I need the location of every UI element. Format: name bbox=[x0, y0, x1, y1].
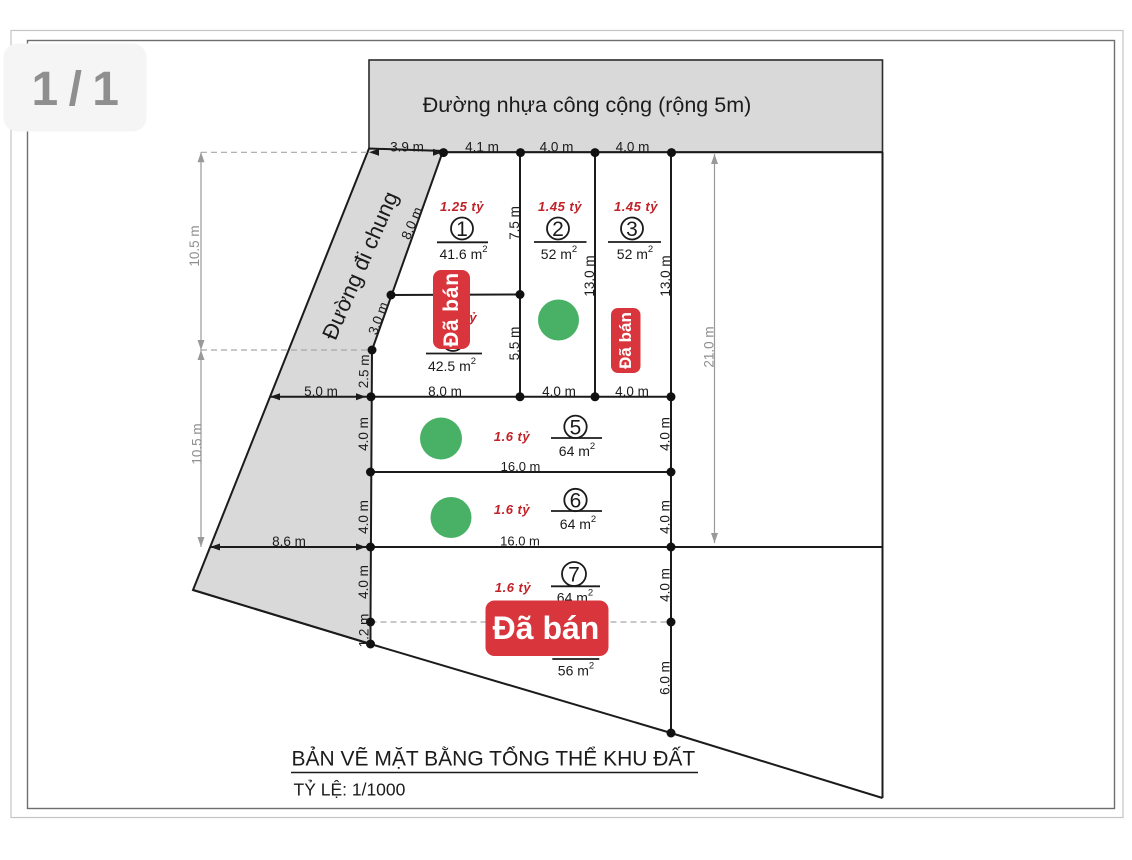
svg-text:1.6 tỷ: 1.6 tỷ bbox=[495, 580, 532, 595]
svg-text:13.0 m: 13.0 m bbox=[658, 255, 673, 296]
svg-text:4.0 m: 4.0 m bbox=[658, 568, 673, 602]
svg-text:41.6 m2: 41.6 m2 bbox=[439, 244, 487, 262]
svg-text:6: 6 bbox=[570, 490, 582, 513]
svg-text:42.5 m2: 42.5 m2 bbox=[428, 356, 476, 374]
svg-text:52 m2: 52 m2 bbox=[617, 244, 653, 262]
svg-text:1.45 tỷ: 1.45 tỷ bbox=[614, 199, 658, 214]
svg-text:1.25 tỷ: 1.25 tỷ bbox=[440, 199, 484, 214]
svg-text:8.0 m: 8.0 m bbox=[428, 384, 462, 399]
svg-text:Đã bán: Đã bán bbox=[493, 610, 600, 646]
svg-text:4.0 m: 4.0 m bbox=[658, 417, 673, 451]
svg-text:6.0 m: 6.0 m bbox=[658, 661, 673, 695]
svg-text:10.5 m: 10.5 m bbox=[190, 423, 205, 464]
svg-text:7: 7 bbox=[568, 564, 580, 587]
svg-text:4.0 m: 4.0 m bbox=[616, 140, 650, 155]
svg-text:1.6 tỷ: 1.6 tỷ bbox=[494, 429, 531, 444]
svg-text:7.5 m: 7.5 m bbox=[507, 206, 522, 240]
svg-text:64 m2: 64 m2 bbox=[560, 514, 596, 532]
svg-text:4.1 m: 4.1 m bbox=[465, 140, 499, 155]
svg-text:10.5 m: 10.5 m bbox=[187, 225, 202, 266]
svg-text:8.6 m: 8.6 m bbox=[272, 534, 306, 549]
svg-text:1.45 tỷ: 1.45 tỷ bbox=[538, 199, 582, 214]
svg-text:4.0 m: 4.0 m bbox=[356, 565, 371, 599]
svg-text:4.0 m: 4.0 m bbox=[615, 384, 649, 399]
svg-text:52 m2: 52 m2 bbox=[541, 244, 577, 262]
svg-text:3: 3 bbox=[626, 218, 638, 241]
svg-text:4.0 m: 4.0 m bbox=[356, 500, 371, 534]
svg-text:4.0 m: 4.0 m bbox=[356, 417, 371, 451]
svg-text:4.0 m: 4.0 m bbox=[540, 140, 574, 155]
svg-text:56 m2: 56 m2 bbox=[558, 661, 594, 679]
svg-text:Đã bán: Đã bán bbox=[616, 312, 635, 369]
svg-text:1.2 m: 1.2 m bbox=[357, 614, 372, 648]
svg-text:Đường nhựa công cộng (rộng 5m): Đường nhựa công cộng (rộng 5m) bbox=[423, 93, 752, 117]
svg-text:5: 5 bbox=[570, 416, 582, 439]
svg-text:TỶ LỆ: 1/1000: TỶ LỆ: 1/1000 bbox=[294, 779, 406, 800]
svg-text:16.0 m: 16.0 m bbox=[500, 533, 540, 548]
svg-text:Đã bán: Đã bán bbox=[440, 272, 463, 347]
svg-text:1: 1 bbox=[456, 218, 468, 241]
svg-text:1 / 1: 1 / 1 bbox=[32, 63, 119, 116]
svg-text:5.5 m: 5.5 m bbox=[507, 327, 522, 361]
svg-text:3.9 m: 3.9 m bbox=[390, 140, 424, 155]
svg-text:1.6 tỷ: 1.6 tỷ bbox=[494, 502, 531, 517]
svg-text:4.0 m: 4.0 m bbox=[542, 384, 576, 399]
svg-text:5.0 m: 5.0 m bbox=[304, 384, 338, 399]
svg-text:4.0 m: 4.0 m bbox=[658, 500, 673, 534]
svg-text:2: 2 bbox=[552, 218, 564, 241]
svg-text:64 m2: 64 m2 bbox=[559, 441, 595, 459]
svg-text:21.0 m: 21.0 m bbox=[702, 326, 717, 367]
svg-text:2.5 m: 2.5 m bbox=[356, 354, 372, 388]
svg-text:13.0 m: 13.0 m bbox=[582, 255, 597, 296]
svg-text:BẢN VẼ MẶT BẰNG TỔNG THỂ KHU Đ: BẢN VẼ MẶT BẰNG TỔNG THỂ KHU ĐẤT bbox=[292, 747, 696, 771]
svg-text:16.0 m: 16.0 m bbox=[501, 459, 541, 474]
